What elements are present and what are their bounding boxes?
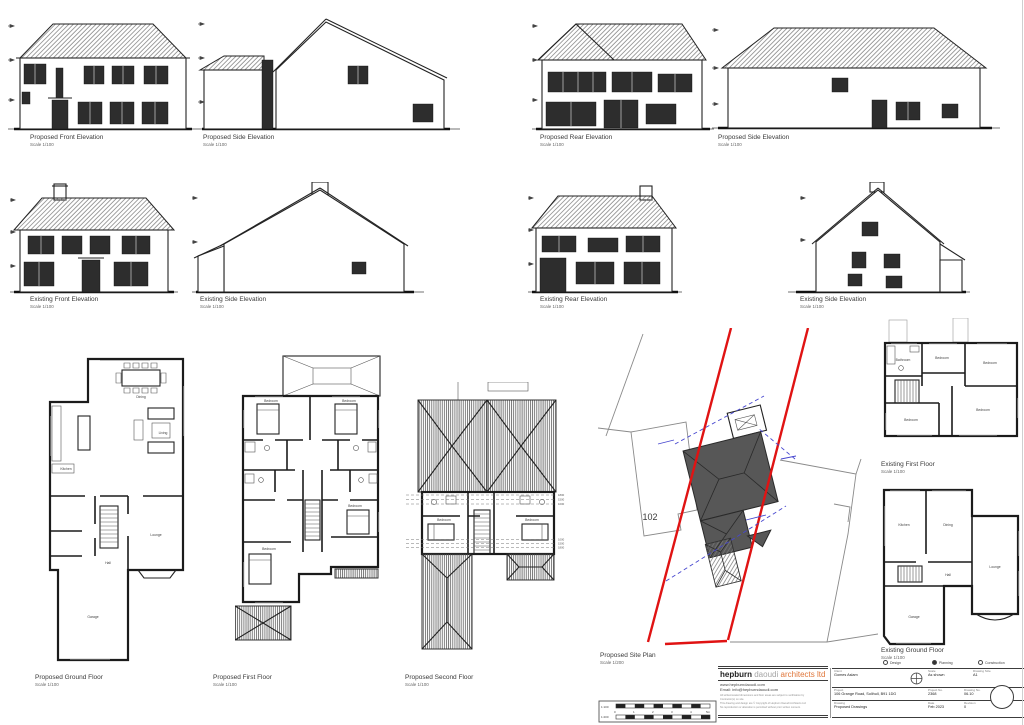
level-markers: [528, 197, 533, 266]
level-markers: [800, 197, 805, 242]
room-labels: Bedroom Bedroom: [437, 518, 539, 522]
label-proposed-front-elevation: Proposed Front Elevation Scale 1/100: [30, 134, 103, 148]
interior-walls: [884, 490, 972, 586]
firm-disclaimer-2: Contractor(s) on site.: [720, 698, 744, 701]
proposed-side-elevation-drawing: [198, 12, 460, 134]
svg-text:Garage: Garage: [87, 615, 98, 619]
room-labels: Kitchen Dining Lounge Hall Garage: [898, 523, 1000, 619]
level-markers: [10, 199, 15, 268]
existing-ground-floor-drawing: Kitchen Dining Lounge Hall Garage: [876, 486, 1024, 646]
label-existing-side-elevation: Existing Side Elevation Scale 1/100: [200, 296, 266, 310]
svg-text:Hall: Hall: [945, 573, 951, 577]
svg-text:Bedroom: Bedroom: [976, 408, 990, 412]
drawing-no-value: 06.10: [964, 692, 981, 697]
svg-text:1800: 1800: [558, 546, 565, 550]
proposed-ground-floor-panel: Dining Kitchen Living Hall Lounge Garage: [30, 346, 210, 668]
client-value: Gomes Aslam: [834, 673, 858, 678]
interior-walls: [50, 496, 183, 570]
level-markers: [532, 25, 537, 102]
svg-text:Bedroom: Bedroom: [437, 518, 451, 522]
field-drawing-size: Drawing Size A1: [973, 670, 991, 678]
bay-window: [138, 570, 176, 578]
field-revision: Revision 0: [964, 702, 976, 710]
panel-title: Proposed Front Elevation: [30, 134, 103, 142]
svg-text:Bedroom: Bedroom: [904, 418, 918, 422]
lower-roofs: [422, 554, 554, 649]
proposed-site-plan-panel: 102: [598, 328, 878, 654]
room-labels: Bathroom Bedroom Bedroom Bedroom Bedroom: [896, 356, 997, 422]
existing-side-elevation-drawing: [192, 182, 424, 296]
label-existing-first-floor: Existing First Floor Scale 1/100: [881, 461, 935, 475]
proposed-second-floor-drawing: 1800 1500 1000 1000 1500 1800 Bedroom Be…: [404, 382, 572, 670]
svg-text:1500: 1500: [558, 498, 565, 502]
label-proposed-rear-elevation: Proposed Rear Elevation Scale 1/100: [540, 134, 612, 148]
level-markers: [198, 23, 204, 104]
panel-title: Existing Side Elevation: [800, 296, 866, 304]
panel-scale: Scale 1/100: [881, 469, 935, 475]
architect-stamp-circle: [990, 685, 1014, 709]
svg-text:Bedroom: Bedroom: [342, 399, 356, 403]
existing-front-elevation-panel: [10, 182, 178, 296]
neighbor-plot-number: 102: [642, 512, 657, 522]
sheet-edge-line: [1022, 0, 1023, 725]
svg-text:Bedroom: Bedroom: [264, 399, 278, 403]
existing-side-elevation-2-panel: [788, 182, 970, 296]
panel-title: Existing Ground Floor: [881, 647, 944, 655]
svg-text:1000: 1000: [558, 502, 565, 506]
firm-name-accent: architects ltd: [781, 670, 826, 679]
svg-text:Bedroom: Bedroom: [983, 361, 997, 365]
existing-side-elevation-2-drawing: [788, 182, 970, 296]
svg-text:Hall: Hall: [105, 561, 111, 565]
room-labels: Dining Kitchen Living Hall Lounge Garage: [60, 395, 167, 619]
svg-text:Bathroom: Bathroom: [896, 358, 911, 362]
sofas: [134, 408, 174, 453]
roof-light: [283, 356, 380, 396]
field-drawing: Drawing Proposed Drawings: [834, 702, 867, 710]
svg-text:Dining: Dining: [136, 395, 146, 399]
beds: [249, 404, 369, 584]
proposed-rear-elevation-panel: [532, 12, 714, 134]
title-block: hepburn daoudi architects ltd www.hepbur…: [718, 658, 1024, 722]
project-value: 106 Grange Road, Solihull, B91 1DG: [834, 692, 896, 697]
svg-text:1800: 1800: [558, 493, 565, 497]
panel-title: Proposed Side Elevation: [203, 134, 274, 142]
panel-scale: Scale 1/100: [35, 682, 103, 688]
panel-scale: Scale 1/100: [200, 304, 266, 310]
main-roof: [418, 400, 556, 492]
label-proposed-side-elevation-2: Proposed Side Elevation Scale 1/100: [718, 134, 789, 148]
svg-text:Dining: Dining: [943, 523, 953, 527]
proposed-front-elevation-drawing: [8, 12, 198, 134]
label-existing-front-elevation: Existing Front Elevation Scale 1/100: [30, 296, 98, 310]
field-date: Date Feb 2023: [928, 702, 944, 710]
existing-side-elevation-panel: [192, 182, 424, 296]
panel-scale: Scale 1/100: [213, 682, 272, 688]
level-markers: [712, 29, 718, 106]
panel-title: Proposed Site Plan: [600, 652, 656, 660]
drawing-sheet: { "labels": { "row1": [ {"title": "Propo…: [0, 0, 1024, 725]
panel-title: Proposed Ground Floor: [35, 674, 103, 682]
panel-title: Existing Front Elevation: [30, 296, 98, 304]
scale-bar-ratio-top: 1:100: [601, 705, 609, 709]
label-proposed-second-floor: Proposed Second Floor Scale 1/100: [405, 674, 473, 688]
rear-windows: [540, 236, 660, 292]
svg-text:Bedroom: Bedroom: [348, 504, 362, 508]
project-no-value: 2368: [928, 692, 943, 697]
status-planning: Planning: [932, 660, 953, 665]
field-project: Project 106 Grange Road, Solihull, B91 1…: [834, 689, 896, 697]
panel-scale: Scale 1/100: [718, 142, 789, 148]
dining-table: [116, 363, 166, 393]
stairs: [305, 500, 320, 540]
field-scale: Scale As shown: [928, 670, 944, 678]
label-proposed-first-floor: Proposed First Floor Scale 1/100: [213, 674, 272, 688]
existing-first-floor-panel: Bathroom Bedroom Bedroom Bedroom Bedroom: [877, 318, 1023, 460]
design-radio-icon: [883, 660, 888, 665]
status-planning-label: Planning: [939, 661, 953, 665]
drawing-size-value: A1: [973, 673, 991, 678]
svg-text:Bedroom: Bedroom: [525, 518, 539, 522]
status-construction-label: Construction: [985, 661, 1005, 665]
graphic-scale-bar: 1:100 1:200 0 1 2 3 4 5m: [598, 700, 722, 724]
planning-radio-icon: [932, 660, 937, 665]
existing-rear-elevation-panel: [528, 182, 682, 296]
existing-front-elevation-drawing: [10, 182, 178, 296]
kitchen-units: [52, 406, 90, 473]
firm-email: Email: info@hepburndaoudi.com: [720, 687, 778, 692]
proposed-front-elevation-panel: [8, 12, 198, 134]
svg-text:5m: 5m: [706, 710, 711, 714]
proposed-ground-floor-drawing: Dining Kitchen Living Hall Lounge Garage: [30, 346, 210, 668]
head-height-lines: 1800 1500 1000 1000 1500 1800: [406, 493, 565, 550]
level-markers: [8, 25, 14, 102]
panel-scale: Scale 1/100: [540, 304, 607, 310]
north-arrow-icon: [910, 672, 923, 685]
panel-title: Existing Side Elevation: [200, 296, 266, 304]
field-drawing-no: Drawing No. 06.10: [964, 689, 981, 697]
level-markers: [192, 197, 197, 244]
proposed-second-floor-panel: 1800 1500 1000 1000 1500 1800 Bedroom Be…: [404, 382, 572, 670]
panel-scale: Scale 1/100: [30, 142, 103, 148]
interior-walls: [422, 492, 554, 554]
label-proposed-site-plan: Proposed Site Plan Scale 1/200: [600, 652, 656, 666]
panel-title: Proposed Rear Elevation: [540, 134, 612, 142]
panel-scale: Scale 1/100: [800, 304, 866, 310]
proposed-side-elevation-panel: [198, 12, 460, 134]
status-design-label: Design: [890, 661, 901, 665]
svg-text:Bedroom: Bedroom: [262, 547, 276, 551]
label-existing-side-elevation-2: Existing Side Elevation Scale 1/100: [800, 296, 866, 310]
label-proposed-ground-floor: Proposed Ground Floor Scale 1/100: [35, 674, 103, 688]
svg-text:Garage: Garage: [908, 615, 919, 619]
drawing-value: Proposed Drawings: [834, 705, 867, 710]
svg-text:Living: Living: [159, 431, 168, 435]
revision-value: 0: [964, 705, 976, 710]
field-project-no: Project No. 2368: [928, 689, 943, 697]
svg-text:Kitchen: Kitchen: [898, 523, 909, 527]
panel-scale: Scale 1/100: [540, 142, 612, 148]
date-value: Feb 2023: [928, 705, 944, 710]
panel-scale: Scale 1/200: [600, 660, 656, 666]
panel-scale: Scale 1/100: [203, 142, 274, 148]
scale-bar-drawing: 1:100 1:200 0 1 2 3 4 5m: [598, 700, 722, 724]
bathroom-fixtures: [245, 442, 377, 483]
interior-walls: [885, 343, 1017, 436]
scale-bar-ratio-bottom: 1:200: [601, 715, 609, 719]
firm-disclaimer-1: All written/scaled dimensions and floor …: [720, 694, 804, 697]
panel-title: Existing Rear Elevation: [540, 296, 607, 304]
stairs: [898, 566, 922, 582]
lower-roofs: [235, 569, 378, 640]
status-construction: Construction: [978, 660, 1005, 665]
proposed-first-floor-drawing: Bedroom Bedroom Bedroom Bedroom: [235, 352, 390, 668]
panel-title: Proposed First Floor: [213, 674, 272, 682]
panel-title: Proposed Second Floor: [405, 674, 473, 682]
proposed-side-elevation-2-drawing: [712, 12, 1000, 134]
proposed-first-floor-panel: Bedroom Bedroom Bedroom Bedroom: [235, 352, 390, 668]
firm-name-bold: hepburn: [720, 670, 752, 679]
proposed-side-elevation-2-panel: [712, 12, 1000, 134]
proposed-site-plan-drawing: 102: [598, 328, 878, 654]
status-design: Design: [883, 660, 901, 665]
panel-scale: Scale 1/100: [30, 304, 98, 310]
panel-title: Existing First Floor: [881, 461, 935, 469]
scale-value: As shown: [928, 673, 944, 678]
svg-text:Kitchen: Kitchen: [60, 467, 71, 471]
construction-radio-icon: [978, 660, 983, 665]
label-proposed-side-elevation: Proposed Side Elevation Scale 1/100: [203, 134, 274, 148]
stairs: [895, 380, 919, 403]
firm-name-mid: daoudi: [754, 670, 778, 679]
svg-text:Bedroom: Bedroom: [935, 356, 949, 360]
existing-ground-floor-panel: Kitchen Dining Lounge Hall Garage: [876, 486, 1024, 646]
stairs: [100, 506, 118, 548]
existing-rear-elevation-drawing: [528, 182, 682, 296]
panel-title: Proposed Side Elevation: [718, 134, 789, 142]
svg-text:Lounge: Lounge: [150, 533, 161, 537]
firm-disclaimer-4: No reproduction or alteration is permitt…: [720, 706, 801, 709]
firm-name: hepburn daoudi architects ltd: [720, 670, 825, 679]
panel-scale: Scale 1/100: [405, 682, 473, 688]
svg-text:Lounge: Lounge: [989, 565, 1000, 569]
existing-first-floor-drawing: Bathroom Bedroom Bedroom Bedroom Bedroom: [877, 318, 1023, 460]
firm-disclaimer-3: This drawing and design are © Copyright …: [720, 702, 806, 705]
field-client: Client Gomes Aslam: [834, 670, 858, 678]
label-existing-rear-elevation: Existing Rear Elevation Scale 1/100: [540, 296, 607, 310]
proposed-rear-elevation-drawing: [532, 12, 714, 134]
